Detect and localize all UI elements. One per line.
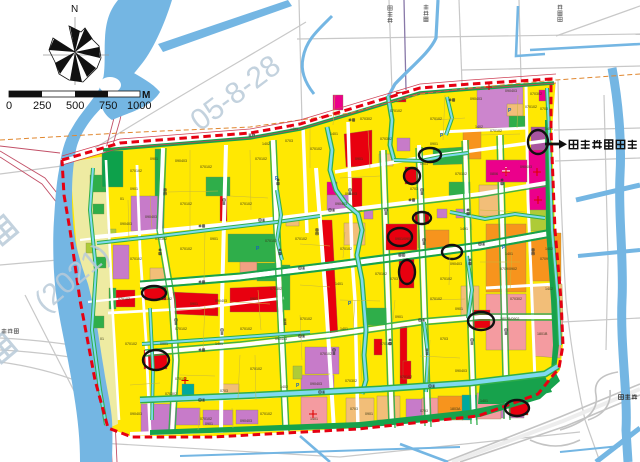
svg-text:070302: 070302: [530, 92, 542, 96]
svg-text:070102: 070102: [390, 109, 402, 113]
svg-text:0901/0902: 0901/0902: [395, 237, 412, 241]
svg-text:750: 750: [99, 100, 117, 112]
svg-text:1402: 1402: [545, 247, 553, 251]
svg-text:1401: 1401: [310, 417, 318, 421]
svg-text:0806: 0806: [490, 172, 498, 176]
svg-text:090403: 090403: [145, 215, 157, 219]
svg-text:0709/0902: 0709/0902: [500, 267, 517, 271]
svg-text:070102: 070102: [430, 117, 442, 121]
svg-text:0703: 0703: [410, 187, 418, 191]
svg-text:090403: 090403: [240, 419, 252, 423]
svg-text:0901: 0901: [150, 157, 158, 161]
svg-text:090403: 090403: [130, 412, 142, 416]
svg-text:070102: 070102: [455, 172, 467, 176]
svg-text:1401: 1401: [480, 399, 488, 403]
svg-text:0901: 0901: [210, 237, 218, 241]
svg-text:0703: 0703: [390, 277, 398, 281]
svg-text:090403: 090403: [470, 97, 482, 101]
svg-text:0901: 0901: [420, 162, 428, 166]
svg-text:070102: 070102: [265, 239, 277, 243]
svg-text:070302: 070302: [380, 137, 392, 141]
svg-text:0901: 0901: [160, 342, 168, 346]
svg-text:070102: 070102: [490, 129, 502, 133]
svg-text:1801B: 1801B: [537, 332, 548, 336]
svg-text:070302: 070302: [345, 379, 357, 383]
svg-text:0901: 0901: [250, 297, 258, 301]
svg-text:0: 0: [6, 100, 12, 112]
svg-text:1401: 1401: [290, 127, 298, 131]
svg-text:070102: 070102: [310, 147, 322, 151]
svg-text:070102: 070102: [118, 297, 130, 301]
svg-text:070302: 070302: [165, 392, 177, 396]
svg-text:090403: 090403: [310, 382, 322, 386]
svg-text:070102: 070102: [180, 202, 192, 206]
svg-text:070102: 070102: [130, 257, 142, 261]
svg-text:1401: 1401: [545, 127, 553, 131]
svg-text:0901: 0901: [130, 187, 138, 191]
svg-text:N: N: [71, 4, 78, 15]
svg-text:0901: 0901: [365, 412, 373, 416]
svg-text:070102: 070102: [130, 169, 142, 173]
svg-text:1402: 1402: [280, 385, 288, 389]
svg-text:0709: 0709: [540, 257, 548, 261]
svg-text:070102: 070102: [125, 342, 137, 346]
svg-text:070302: 070302: [360, 117, 372, 121]
svg-text:070102: 070102: [260, 412, 272, 416]
svg-text:0703: 0703: [220, 389, 228, 393]
svg-text:070102: 070102: [440, 277, 452, 281]
svg-text:090403: 090403: [450, 262, 462, 266]
svg-text:070102: 070102: [295, 237, 307, 241]
svg-text:1401: 1401: [505, 252, 513, 256]
svg-text:0703: 0703: [540, 107, 548, 111]
svg-text:070102: 070102: [160, 297, 172, 301]
svg-text:070102: 070102: [320, 352, 332, 356]
svg-text:070102: 070102: [340, 247, 352, 251]
svg-text:0901: 0901: [455, 307, 463, 311]
svg-text:1401: 1401: [340, 327, 348, 331]
svg-text:070102: 070102: [300, 317, 312, 321]
svg-text:070102: 070102: [430, 297, 442, 301]
svg-text:090403: 090403: [505, 89, 517, 93]
svg-text:070102: 070102: [255, 157, 267, 161]
svg-text:0703: 0703: [285, 139, 293, 143]
svg-text:1402: 1402: [262, 142, 270, 146]
svg-text:0703: 0703: [350, 407, 358, 411]
svg-text:070102: 070102: [240, 202, 252, 206]
svg-text:1401: 1401: [215, 342, 223, 346]
svg-text:070302: 070302: [510, 297, 522, 301]
svg-text:0703: 0703: [440, 337, 448, 341]
svg-text:090403: 090403: [335, 202, 347, 206]
svg-text:1401: 1401: [460, 227, 468, 231]
svg-text:1402: 1402: [475, 125, 483, 129]
svg-text:1401: 1401: [335, 282, 343, 286]
svg-text:0901: 0901: [395, 315, 403, 319]
svg-text:070302: 070302: [270, 287, 282, 291]
svg-text:01: 01: [120, 197, 124, 201]
svg-text:1000: 1000: [127, 100, 151, 112]
svg-text:070102: 070102: [180, 247, 192, 251]
svg-text:0901: 0901: [355, 157, 363, 161]
svg-text:250: 250: [33, 100, 51, 112]
svg-text:090403: 090403: [520, 165, 532, 169]
svg-text:1401: 1401: [330, 132, 338, 136]
svg-text:090403: 090403: [455, 369, 467, 373]
svg-text:090403: 090403: [175, 159, 187, 163]
svg-text:070102: 070102: [525, 105, 537, 109]
svg-text:070102: 070102: [175, 327, 187, 331]
svg-text:0901: 0901: [190, 302, 198, 306]
svg-text:090403: 090403: [215, 299, 227, 303]
svg-text:0901: 0901: [430, 142, 438, 146]
svg-text:070102: 070102: [200, 165, 212, 169]
svg-text:070102: 070102: [400, 375, 412, 379]
svg-text:070102: 070102: [200, 417, 212, 421]
svg-text:070102: 070102: [250, 367, 262, 371]
svg-text:0703: 0703: [420, 409, 428, 413]
svg-text:1801B/0902: 1801B/0902: [500, 317, 519, 321]
svg-text:070102: 070102: [240, 327, 252, 331]
svg-text:070302: 070302: [155, 237, 167, 241]
svg-text:070102: 070102: [375, 272, 387, 276]
svg-text:090403: 090403: [275, 337, 287, 341]
svg-text:1402: 1402: [545, 287, 553, 291]
svg-text:1803A: 1803A: [450, 407, 461, 411]
svg-text:500: 500: [66, 100, 84, 112]
svg-text:090403: 090403: [120, 222, 132, 226]
svg-text:0901: 0901: [205, 422, 213, 426]
svg-text:01: 01: [100, 337, 104, 341]
